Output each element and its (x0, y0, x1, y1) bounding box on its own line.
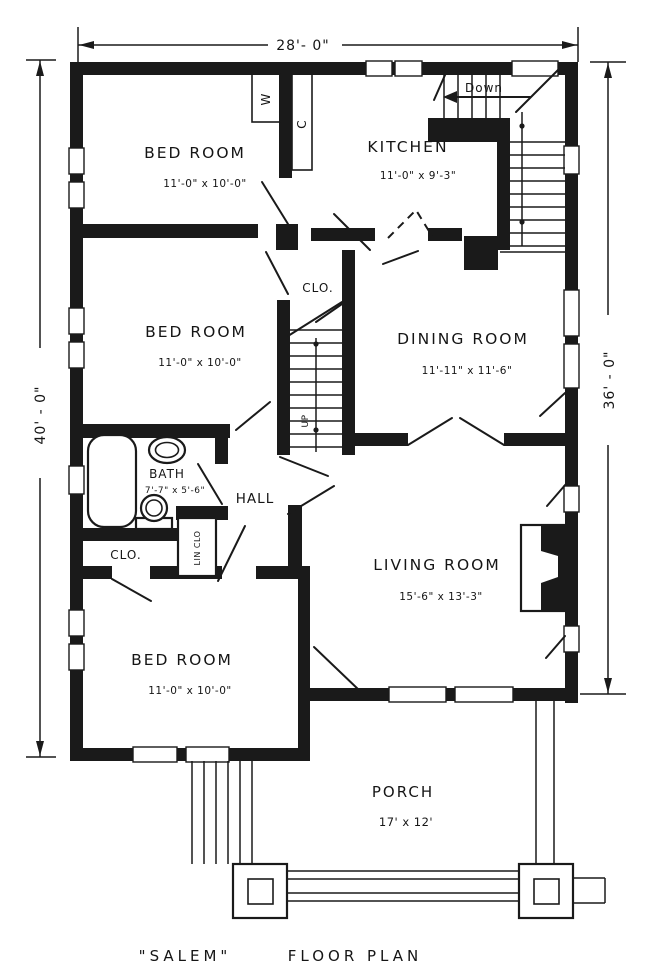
main-stairs (288, 302, 342, 452)
porch-steps (192, 761, 252, 864)
living-name: LIVING ROOM (373, 556, 500, 574)
linen-closet-label: LIN CLO (193, 531, 202, 566)
stairs-up-label: UP (301, 414, 311, 427)
bedroom-mid-size: 11'-0" x 10'-0" (158, 357, 241, 369)
porch-structure (192, 701, 605, 918)
dimension-right-label: 36' - 0" (602, 351, 618, 410)
stairs-down-label: Down (465, 81, 503, 95)
caption-plan-name: "SALEM" (139, 947, 232, 965)
bath-fixtures (88, 435, 185, 529)
fireplace (521, 525, 578, 611)
toilet-icon (149, 437, 185, 463)
kitchen-name: KITCHEN (367, 138, 448, 156)
bedroom-top-name: BED ROOM (144, 144, 246, 162)
dimension-lines (26, 27, 626, 757)
wardrobe-label: W (259, 93, 273, 106)
porch-name: PORCH (372, 783, 434, 801)
bath-name: BATH (149, 467, 185, 481)
dining-size: 11'-11" x 11'-6" (422, 365, 513, 377)
sink-icon (136, 495, 172, 529)
dimension-left-label: 40' - 0" (33, 386, 49, 445)
bedroom-bottom-size: 11'-0" x 10'-0" (148, 685, 231, 697)
bath-size: 7'-7" x 5'-6" (145, 486, 205, 496)
dimension-top-label: 28'- 0" (276, 38, 330, 54)
porch-size: 17' x 12' (379, 815, 433, 829)
closet-center-label: CLO. (302, 281, 333, 295)
floor-plan-drawing: 28'- 0" 40' - 0" 36' - 0" BED ROOM 11'-0… (0, 0, 645, 978)
living-size: 15'-6" x 13'-3" (399, 591, 482, 603)
closet-hall-label: CLO. (110, 548, 141, 562)
bedroom-top-size: 11'-0" x 10'-0" (163, 178, 246, 190)
dining-name: DINING ROOM (397, 330, 529, 348)
kitchen-size: 11'-0" x 9'-3" (380, 170, 456, 182)
porch-column-right (519, 864, 573, 918)
bedroom-mid-name: BED ROOM (145, 323, 247, 341)
porch-column-left (233, 864, 287, 918)
hall-name: HALL (236, 491, 274, 507)
bathtub-icon (88, 435, 136, 527)
bedroom-bottom-name: BED ROOM (131, 651, 233, 669)
closet-kitchen-label: C (295, 119, 309, 128)
floor-plan-page: 28'- 0" 40' - 0" 36' - 0" BED ROOM 11'-0… (0, 0, 645, 978)
caption-plan-label: FLOOR PLAN (288, 947, 422, 965)
